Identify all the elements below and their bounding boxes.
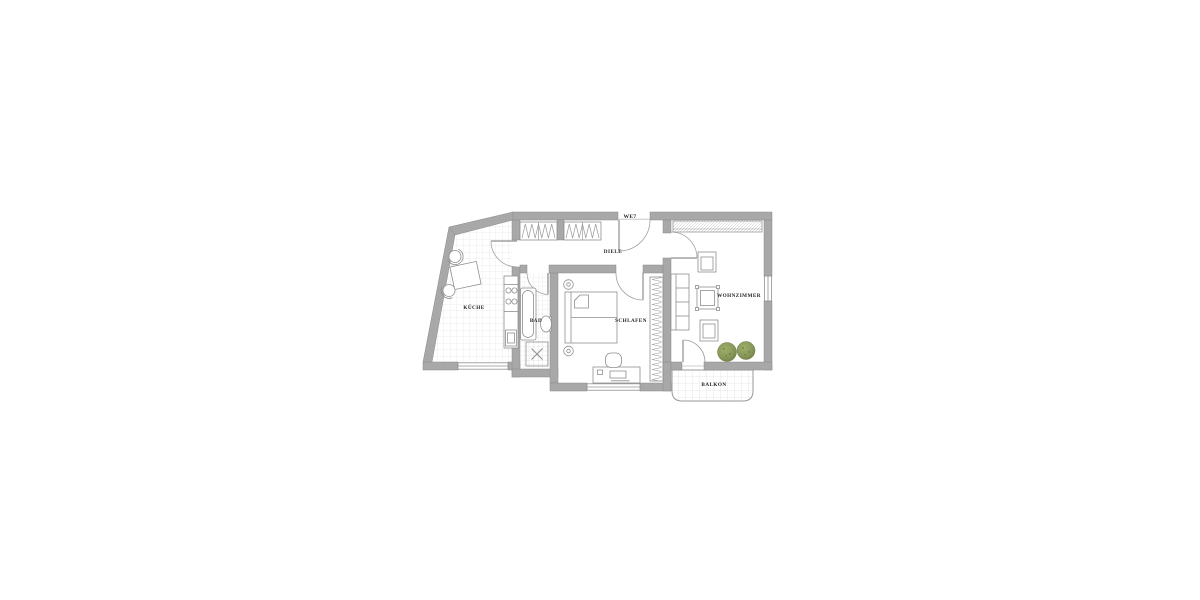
wall-living-left-stub [663,220,671,233]
bathtub [521,288,537,340]
desk-chair [606,353,622,368]
wall-top-right [650,212,772,220]
wall-diele-bottom-c [643,265,663,273]
plant-1 [718,343,737,362]
label-bad: BAD [530,318,542,324]
door-entrance [619,220,650,251]
door-wohnzimmer [671,232,697,258]
door-schlafen [616,273,643,300]
armchair-top [698,252,716,272]
wall-diele-bottom-a [520,265,527,273]
label-diele: DIELE [604,249,622,255]
kitchen-counter [504,276,518,348]
label-balkon: BALKON [701,382,726,388]
door-balkon [683,340,705,362]
wall-living-bottom-right [704,362,772,370]
wall-kueche-right-top [512,220,520,240]
wall-top-left [512,212,618,220]
window-kueche [458,363,508,369]
shower [526,342,548,366]
window-schlafen [587,384,640,390]
bedside-lamp-top [564,280,574,290]
desk [593,367,640,383]
label-schlafen: SCHLAFEN [615,318,647,324]
page-canvas: WE7 KÜCHE BAD DIELE SCHLAFEN WOHNZIMMER … [0,0,1200,600]
label-wohnzimmer: WOHNZIMMER [717,293,761,299]
coffee-table [696,286,720,311]
double-bed [565,292,617,343]
armchair-bottom [700,320,718,341]
kitchen-table [450,261,481,289]
wardrobe-schlafen [650,277,663,381]
closet-diele-1 [520,222,557,240]
closet-diele-2 [564,222,601,240]
wall-diele-bottom-b [549,265,616,273]
furniture-schlafen [564,280,640,383]
wall-living-left [663,258,671,362]
plant-2 [737,342,755,360]
bedside-lamp-bottom [564,346,574,356]
unit-label: WE7 [623,214,636,220]
wall-right-upper [764,220,772,276]
wall-schlafen-right-joint [663,362,671,391]
wall-schlafen-bottom-left [550,383,587,391]
sideboard-wohnzimmer [673,221,762,232]
kitchen-sink [506,330,517,346]
floor-plan-svg: WE7 KÜCHE BAD DIELE SCHLAFEN WOHNZIMMER … [0,0,1200,600]
wall-closet-stub [557,220,564,240]
sofa [671,274,689,330]
wall-right-lower [764,301,772,370]
window-wohnzimmer [765,276,772,301]
label-kueche: KÜCHE [463,303,484,311]
wall-kueche-bottom-left [423,362,458,370]
